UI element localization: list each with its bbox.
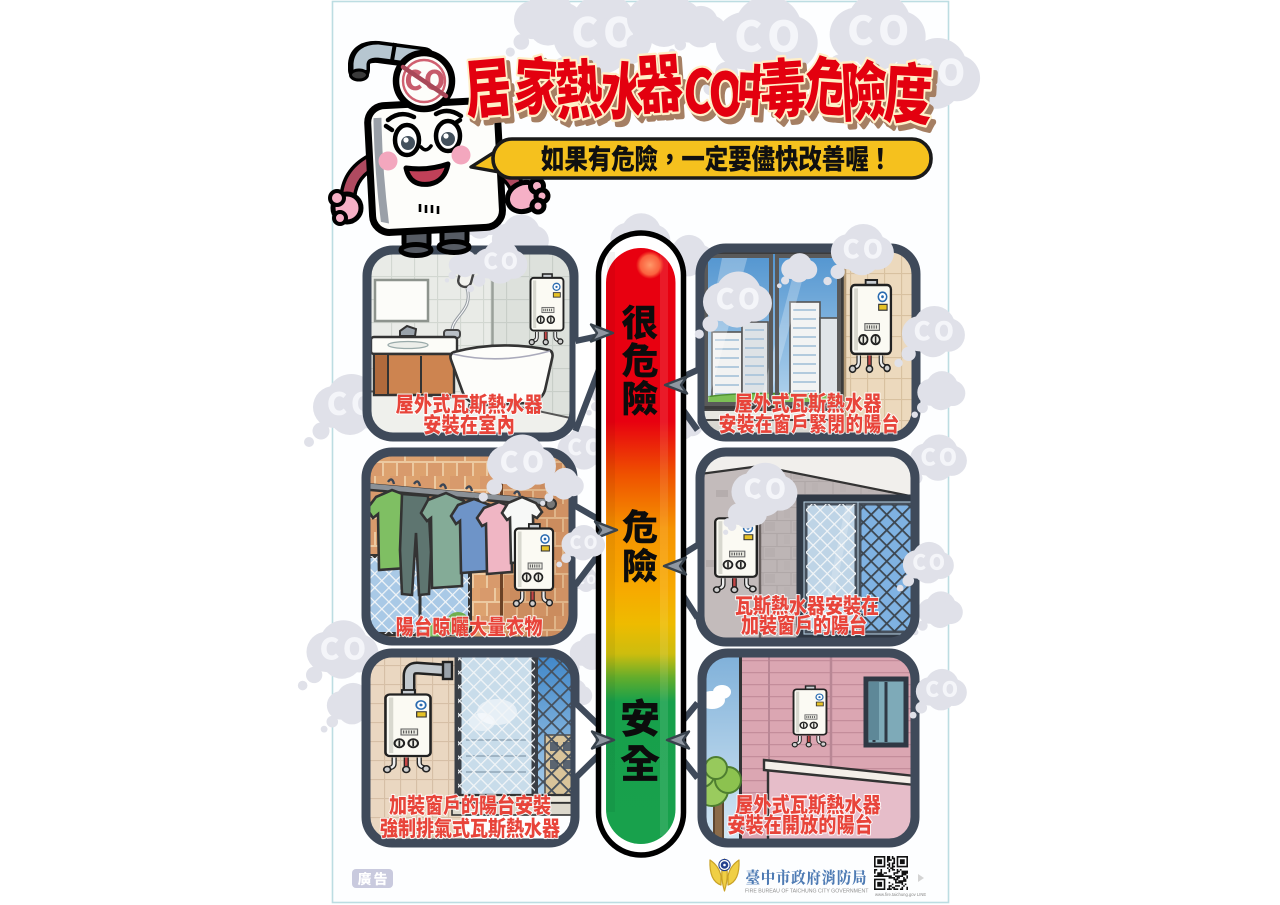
svg-text:www.fire.taichung.gov LINE: www.fire.taichung.gov LINE bbox=[875, 892, 926, 897]
svg-text:FIRE BUREAU OF TAICHUNG CITY G: FIRE BUREAU OF TAICHUNG CITY GOVERNMENT bbox=[745, 889, 869, 895]
